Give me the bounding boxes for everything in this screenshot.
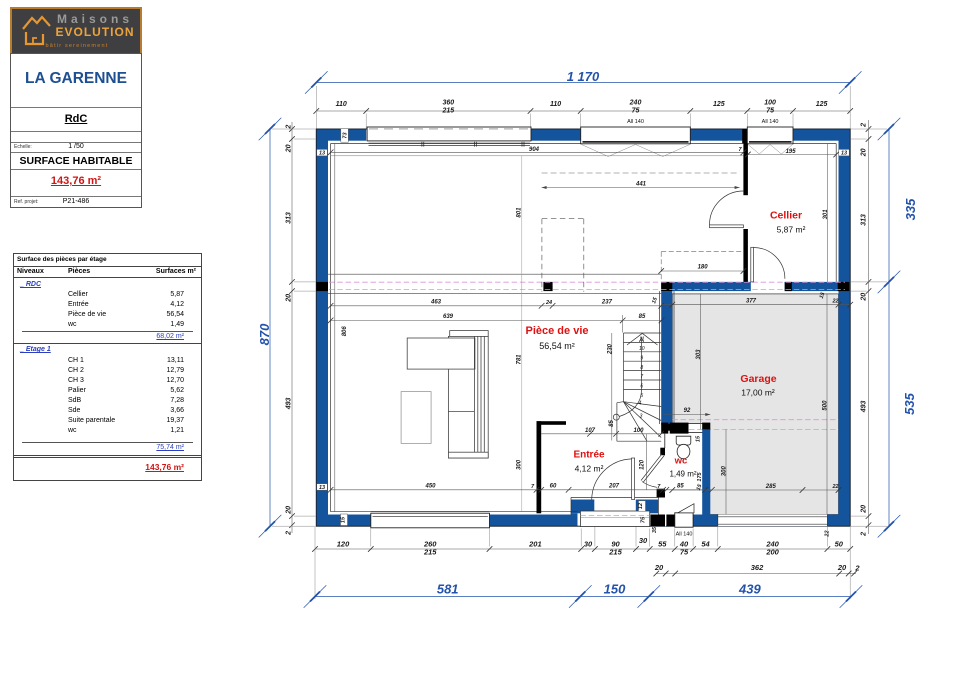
- svg-text:303: 303: [696, 349, 702, 360]
- svg-text:11: 11: [639, 337, 644, 343]
- svg-text:30: 30: [639, 536, 648, 545]
- svg-text:56,54 m²: 56,54 m²: [539, 341, 575, 351]
- svg-text:801: 801: [517, 207, 523, 218]
- svg-text:207: 207: [608, 484, 620, 490]
- svg-text:2: 2: [861, 123, 868, 128]
- svg-text:301: 301: [823, 209, 829, 220]
- svg-text:6: 6: [640, 384, 643, 390]
- svg-text:85: 85: [677, 484, 684, 490]
- svg-text:5: 5: [640, 393, 643, 399]
- svg-text:285: 285: [765, 484, 777, 490]
- svg-text:1,49 m²: 1,49 m²: [669, 470, 696, 479]
- svg-text:806: 806: [342, 326, 348, 337]
- svg-text:313: 313: [861, 214, 868, 226]
- svg-text:4,12 m²: 4,12 m²: [575, 464, 604, 474]
- svg-text:15: 15: [696, 435, 702, 442]
- svg-text:439: 439: [738, 582, 761, 597]
- svg-text:362: 362: [751, 563, 764, 572]
- svg-text:Cellier: Cellier: [770, 210, 802, 222]
- svg-text:7: 7: [640, 374, 643, 380]
- svg-text:22: 22: [825, 530, 831, 537]
- svg-text:All 140: All 140: [676, 532, 693, 538]
- svg-text:180: 180: [698, 264, 709, 270]
- svg-text:All 140: All 140: [762, 119, 779, 125]
- svg-text:2: 2: [286, 125, 293, 130]
- svg-text:300: 300: [517, 459, 523, 470]
- svg-text:13: 13: [841, 151, 847, 157]
- svg-text:22: 22: [831, 299, 838, 305]
- svg-text:5,87 m²: 5,87 m²: [777, 225, 806, 235]
- svg-text:15: 15: [651, 296, 659, 305]
- svg-text:2: 2: [854, 564, 860, 573]
- svg-text:10: 10: [639, 346, 645, 352]
- svg-text:300: 300: [721, 466, 727, 477]
- svg-text:60: 60: [550, 484, 557, 490]
- svg-text:150: 150: [604, 582, 626, 597]
- svg-text:4: 4: [639, 400, 642, 406]
- svg-text:20: 20: [837, 563, 847, 572]
- svg-text:195: 195: [786, 149, 797, 155]
- svg-text:335: 335: [903, 198, 918, 220]
- svg-text:441: 441: [635, 181, 647, 187]
- svg-text:85: 85: [639, 314, 646, 320]
- svg-text:20: 20: [286, 294, 293, 303]
- svg-text:360: 360: [442, 100, 454, 107]
- svg-text:2: 2: [286, 531, 293, 536]
- svg-text:92: 92: [684, 408, 691, 414]
- svg-text:75: 75: [766, 108, 774, 115]
- svg-text:493: 493: [286, 397, 293, 410]
- svg-text:125: 125: [816, 101, 828, 108]
- svg-text:20: 20: [861, 148, 868, 157]
- svg-text:120: 120: [640, 459, 646, 470]
- svg-text:493: 493: [861, 400, 868, 413]
- svg-text:22: 22: [831, 484, 838, 490]
- svg-text:639: 639: [443, 314, 454, 320]
- svg-text:75: 75: [641, 516, 647, 523]
- svg-text:581: 581: [437, 582, 459, 597]
- svg-text:Garage: Garage: [740, 373, 776, 385]
- svg-text:781: 781: [517, 354, 523, 365]
- svg-text:Entrée: Entrée: [573, 450, 605, 461]
- svg-text:201: 201: [528, 540, 542, 549]
- svg-text:7: 7: [531, 484, 535, 490]
- svg-text:75: 75: [632, 108, 640, 115]
- svg-text:20: 20: [861, 293, 868, 302]
- svg-text:24: 24: [545, 300, 552, 306]
- svg-text:463: 463: [430, 300, 442, 306]
- svg-text:230: 230: [608, 343, 614, 355]
- svg-text:20: 20: [286, 144, 293, 153]
- svg-text:100: 100: [633, 428, 644, 434]
- svg-text:215: 215: [441, 108, 454, 115]
- svg-text:120: 120: [337, 540, 350, 549]
- svg-text:85: 85: [609, 420, 615, 427]
- svg-text:Pièce de vie: Pièce de vie: [526, 325, 589, 337]
- svg-text:240: 240: [629, 100, 642, 107]
- svg-text:75: 75: [680, 548, 689, 557]
- svg-text:215: 215: [423, 548, 437, 557]
- svg-text:2: 2: [861, 532, 868, 537]
- svg-text:20: 20: [654, 563, 664, 572]
- svg-text:13: 13: [319, 485, 325, 491]
- svg-text:377: 377: [746, 299, 757, 305]
- svg-text:55: 55: [658, 540, 667, 549]
- svg-text:3: 3: [640, 414, 643, 420]
- svg-text:13: 13: [319, 151, 325, 157]
- svg-text:7: 7: [738, 147, 742, 153]
- svg-text:1 170: 1 170: [567, 69, 600, 84]
- svg-text:wc: wc: [674, 456, 688, 467]
- svg-text:8: 8: [640, 365, 643, 371]
- svg-text:313: 313: [286, 212, 293, 224]
- svg-text:30: 30: [584, 540, 593, 549]
- svg-text:110: 110: [550, 101, 561, 108]
- svg-text:35: 35: [652, 526, 658, 533]
- svg-text:9: 9: [640, 355, 643, 361]
- svg-text:125: 125: [713, 101, 725, 108]
- svg-text:237: 237: [601, 300, 613, 306]
- svg-text:107: 107: [585, 428, 596, 434]
- svg-text:50: 50: [835, 540, 844, 549]
- svg-text:200: 200: [765, 548, 779, 557]
- svg-text:110: 110: [336, 101, 347, 108]
- svg-text:73: 73: [342, 132, 348, 138]
- svg-text:450: 450: [424, 484, 436, 490]
- svg-text:870: 870: [257, 323, 272, 345]
- svg-text:All 140: All 140: [627, 119, 644, 125]
- svg-text:20: 20: [861, 505, 868, 514]
- svg-text:54: 54: [701, 540, 710, 549]
- svg-text:100: 100: [764, 100, 776, 107]
- svg-text:535: 535: [902, 392, 917, 414]
- svg-text:904: 904: [529, 147, 540, 153]
- svg-text:500: 500: [822, 400, 828, 411]
- svg-text:215: 215: [608, 548, 622, 557]
- svg-text:175: 175: [697, 471, 703, 481]
- svg-text:12: 12: [638, 503, 644, 509]
- svg-text:17,00 m²: 17,00 m²: [741, 388, 775, 398]
- svg-text:15: 15: [340, 516, 346, 523]
- svg-text:20: 20: [286, 506, 293, 515]
